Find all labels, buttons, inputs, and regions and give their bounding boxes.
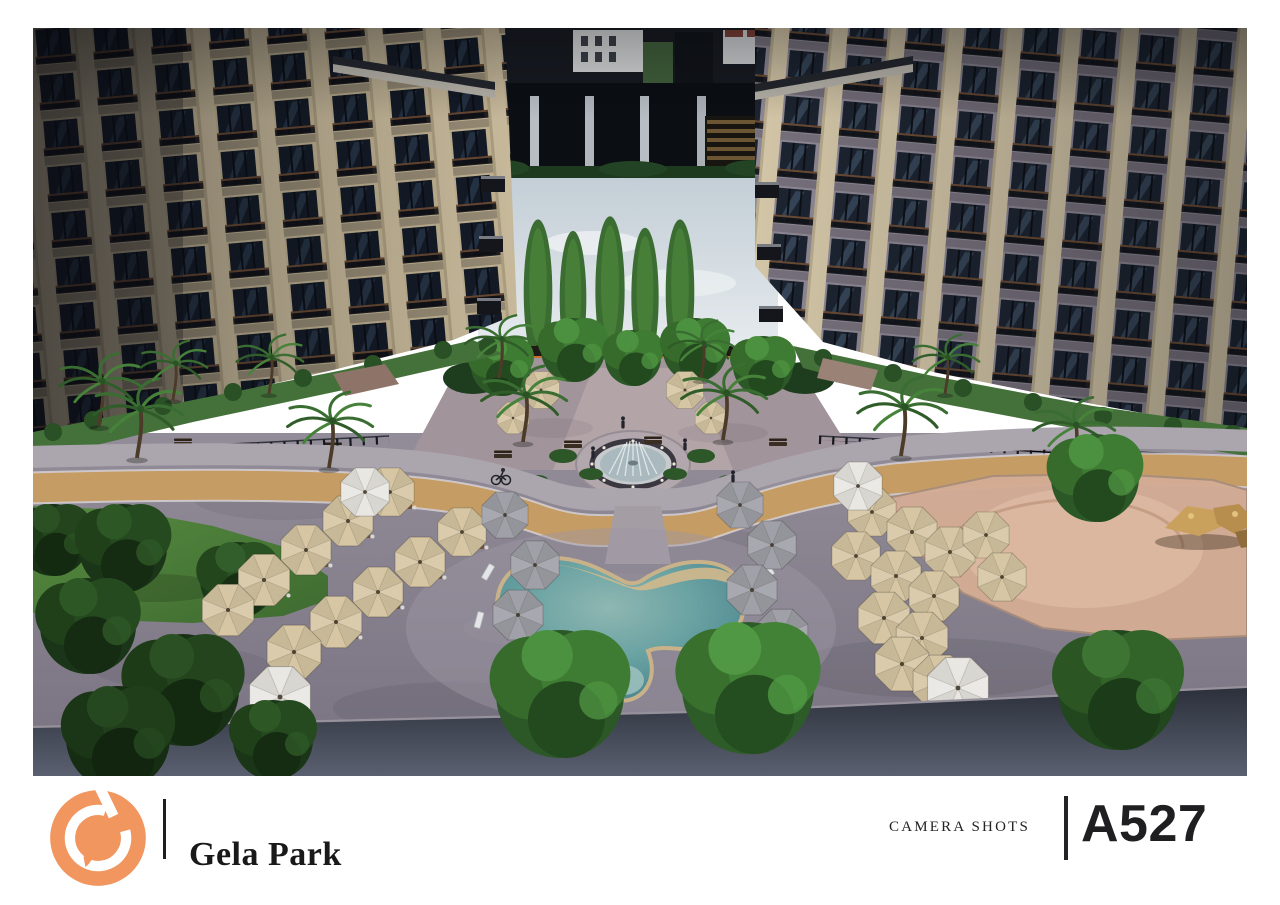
gela-logo	[46, 786, 150, 890]
gela-g-monogram-icon	[46, 786, 150, 890]
top-vignette	[33, 28, 1247, 118]
camera-shot-render	[33, 28, 1247, 776]
titleblock-divider-right	[1064, 796, 1068, 860]
sheet-number: A527	[1081, 798, 1207, 850]
titleblock-divider-left	[163, 799, 166, 859]
courtyard-scene	[33, 28, 1247, 776]
sheet-category: CAMERA SHOTS	[889, 818, 1030, 836]
splash-fountain	[576, 431, 690, 497]
project-title: Gela Park	[189, 835, 342, 875]
